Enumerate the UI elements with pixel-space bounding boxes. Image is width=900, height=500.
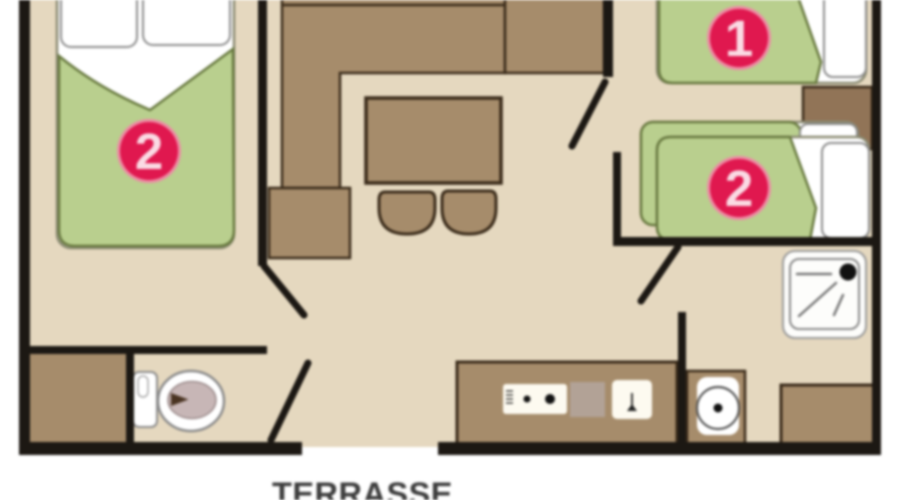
svg-text:2: 2 [135,123,163,180]
svg-text:TERRASSE: TERRASSE [272,476,453,500]
svg-text:1: 1 [725,10,753,67]
svg-text:2: 2 [725,160,753,217]
